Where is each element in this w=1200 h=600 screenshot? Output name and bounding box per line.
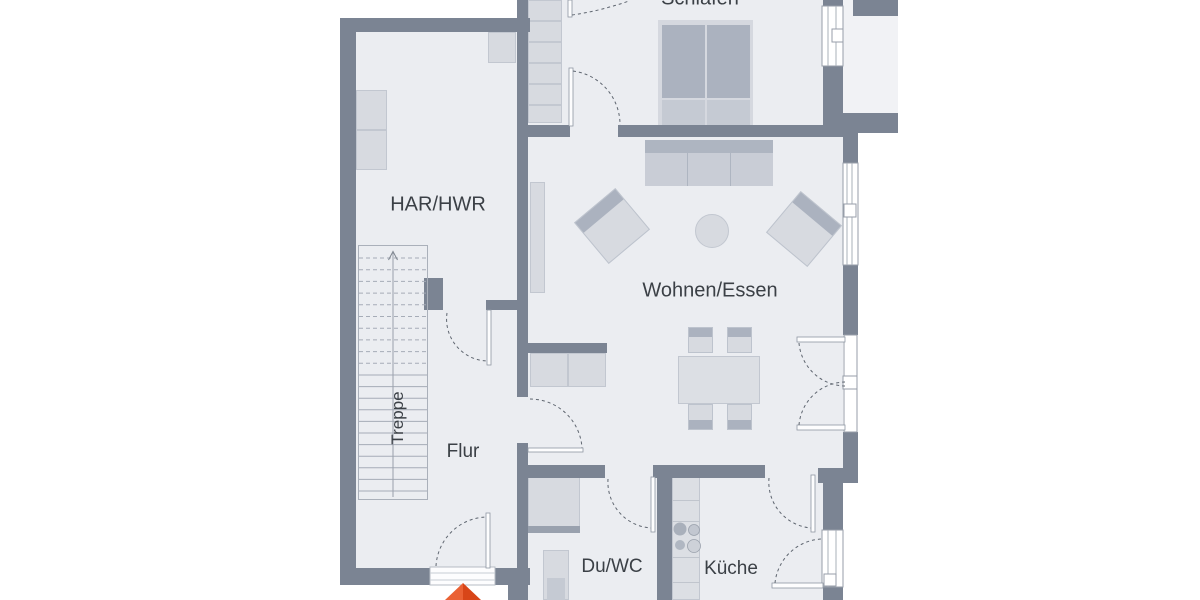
door-leaf (811, 475, 815, 532)
floor-plan: Schlafen HAR/HWR Wohnen/Essen Treppe Flu… (0, 0, 1200, 600)
entrance-threshold (430, 567, 495, 585)
door-leaf (568, 0, 572, 17)
door-leaf (528, 448, 583, 452)
room-label-flur: Flur (447, 441, 480, 463)
door-flur-wohnen (528, 399, 583, 452)
room-label-har-hwr: HAR/HWR (390, 194, 486, 217)
window-schlafen (822, 6, 843, 66)
door-leaf (569, 68, 573, 126)
room-label-treppe: Treppe (388, 391, 408, 444)
window-handle (844, 204, 856, 217)
room-label-schlafen: Schlafen (661, 0, 739, 11)
door-leaf (797, 337, 845, 342)
door-leaf (486, 513, 490, 568)
window-handle (832, 29, 843, 42)
door-har-hwr (447, 310, 491, 365)
window-handle (843, 376, 857, 389)
room-label-kueche: Küche (704, 558, 758, 580)
door-schlafen (568, 0, 629, 17)
room-label-du-wc: Du/WC (581, 556, 642, 578)
door-entrance (436, 513, 490, 568)
window-wohnen (843, 163, 858, 265)
room-label-wohnen-essen: Wohnen/Essen (642, 280, 777, 303)
stove-burners (674, 523, 701, 553)
entrance-arrow (445, 583, 481, 600)
door-leaf (797, 425, 845, 430)
door-leaf (651, 477, 655, 532)
french-door-wohnen (797, 335, 857, 432)
door-duwc (608, 477, 655, 532)
door-leaf (772, 583, 823, 588)
door-corridor-wohnen (569, 68, 620, 126)
door-kueche (769, 475, 815, 532)
stairs (359, 246, 428, 500)
window-handle (824, 574, 836, 586)
plan-linework (0, 0, 1200, 600)
terrace-door-kueche (772, 530, 843, 588)
door-leaf (487, 310, 491, 365)
